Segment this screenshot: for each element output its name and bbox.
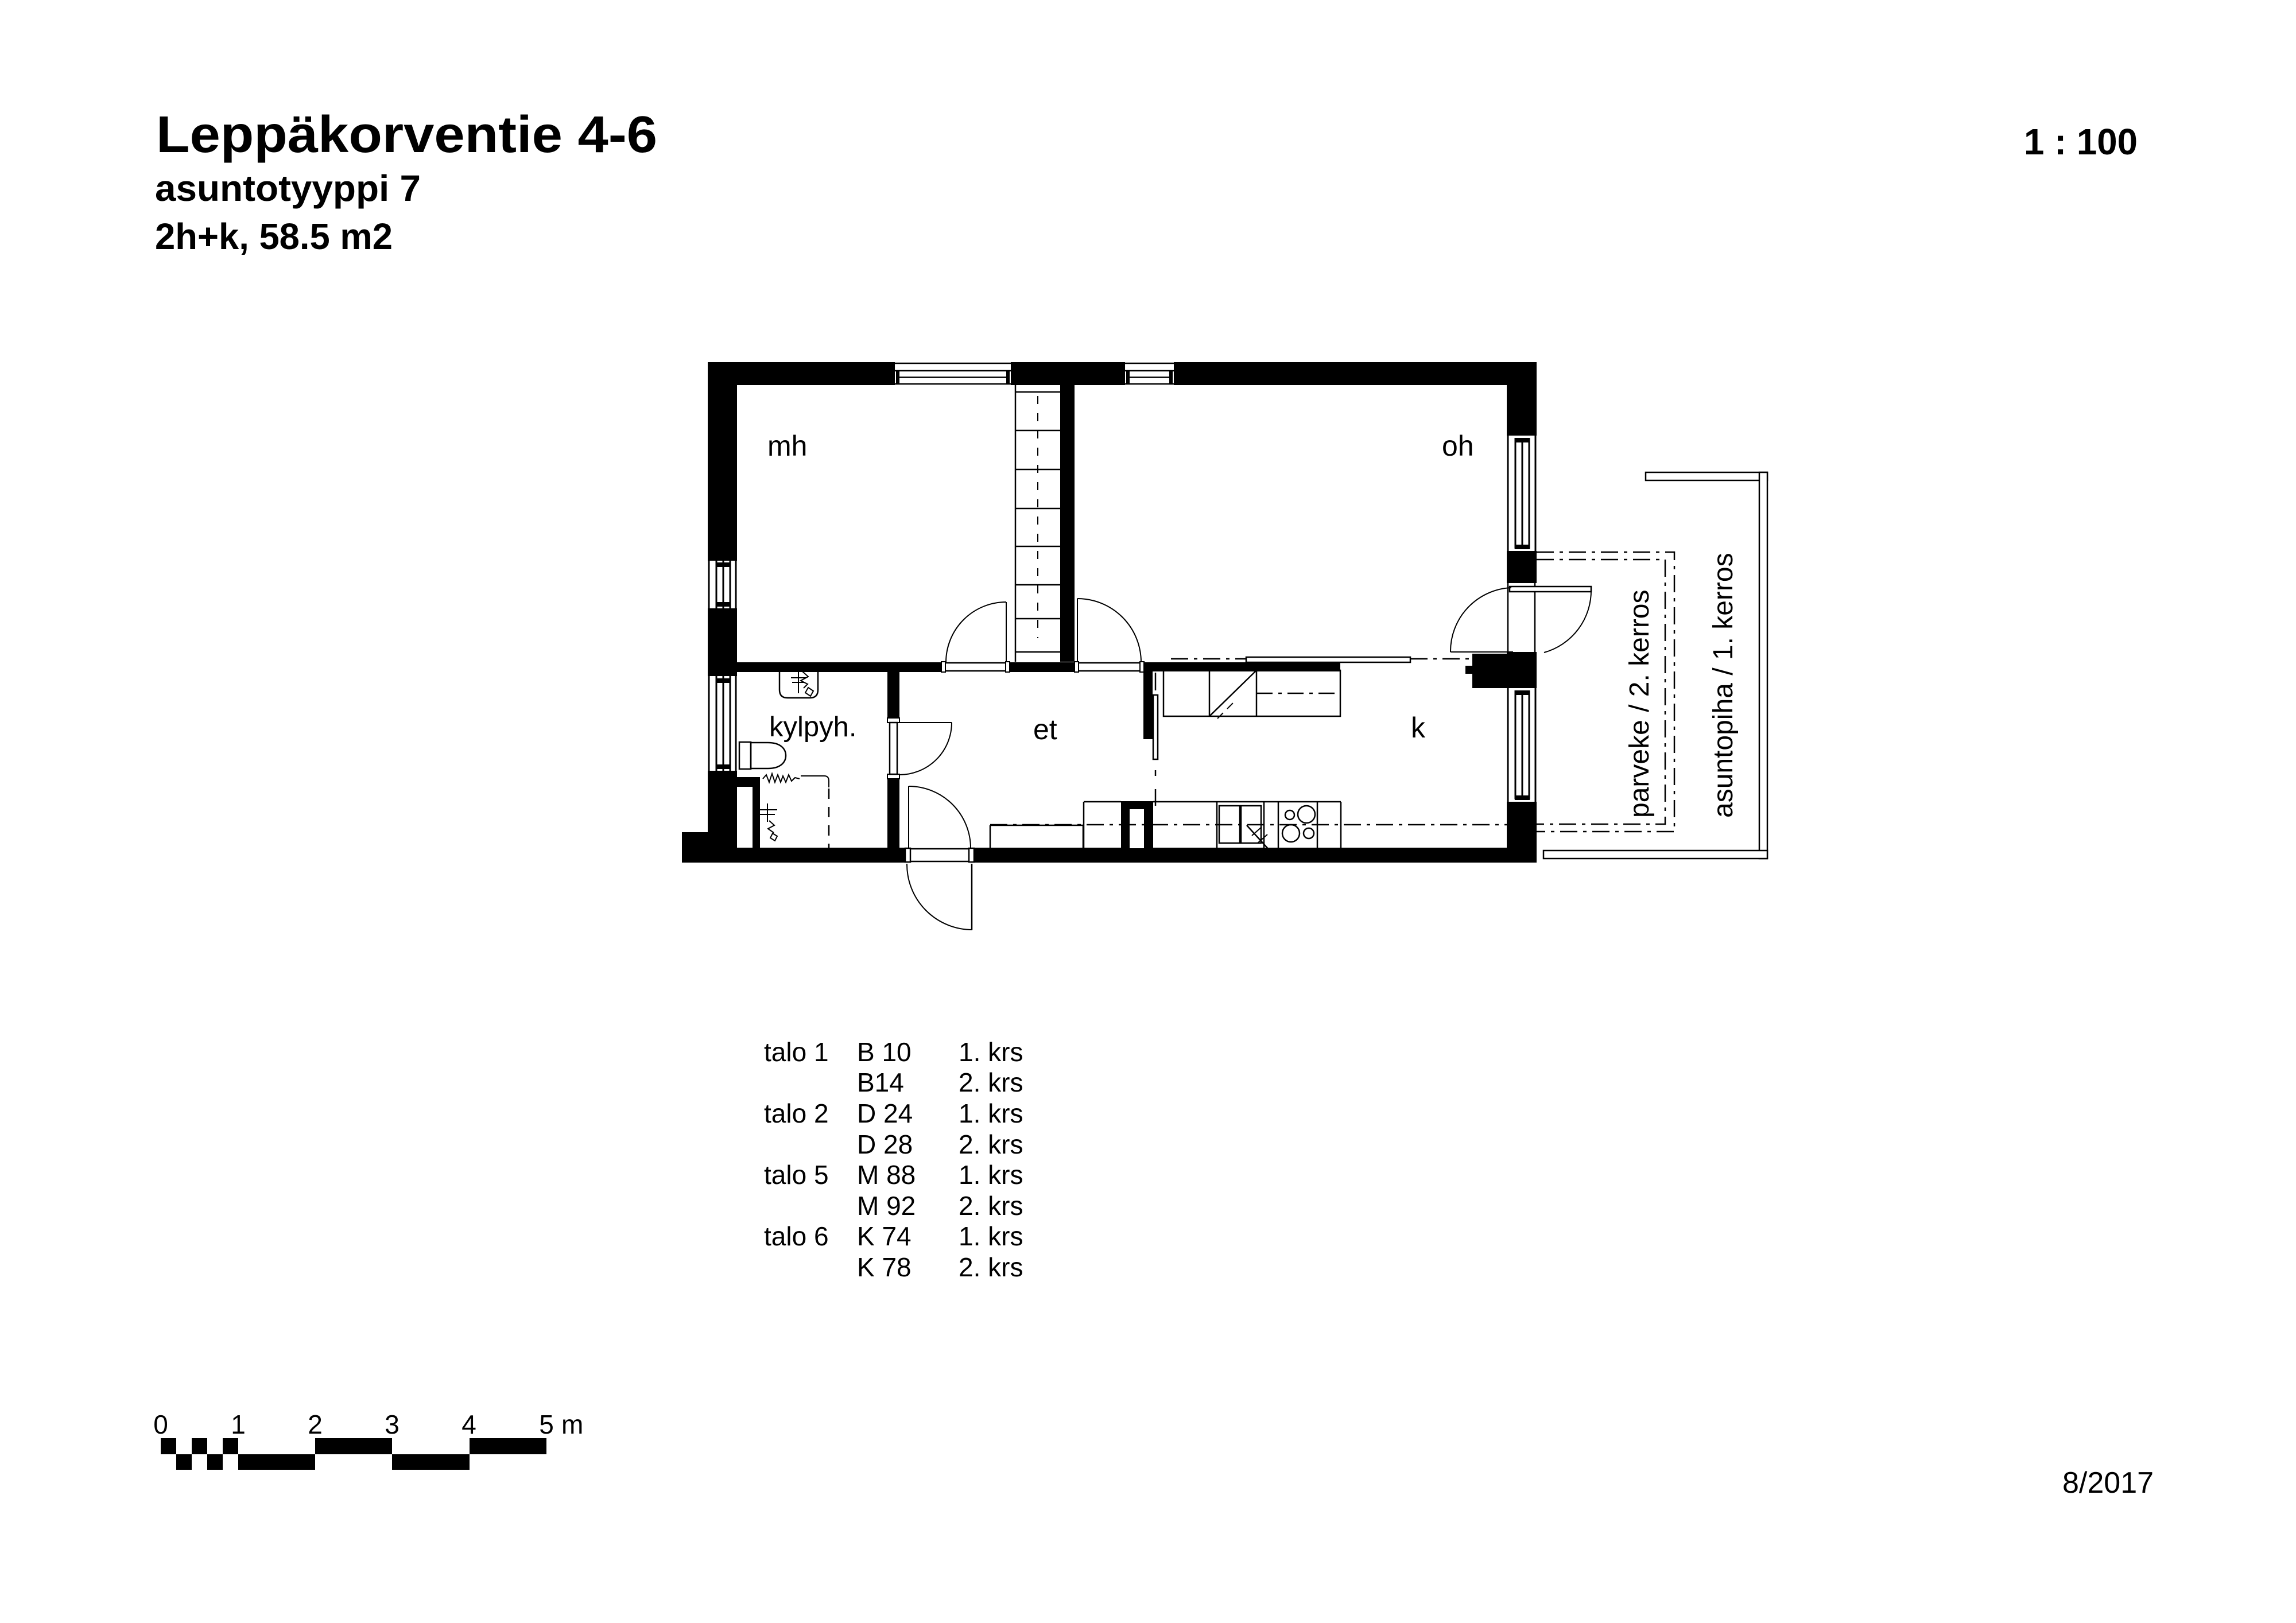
svg-text:1. krs: 1. krs [959,1098,1023,1128]
svg-text:1. krs: 1. krs [959,1160,1023,1190]
svg-text:B 10: B 10 [857,1037,912,1067]
svg-text:Leppäkorventie 4-6: Leppäkorventie 4-6 [156,106,657,164]
svg-text:et: et [1033,713,1057,746]
svg-text:k: k [1411,712,1426,744]
svg-text:asuntopiha / 1. kerros: asuntopiha / 1. kerros [1708,553,1739,818]
svg-text:5: 5 [539,1410,554,1439]
svg-text:0: 0 [153,1410,168,1439]
svg-text:1 : 100: 1 : 100 [2024,121,2138,162]
svg-text:2h+k, 58.5 m2: 2h+k, 58.5 m2 [155,216,393,257]
svg-text:K 78: K 78 [857,1252,912,1282]
svg-text:8/2017: 8/2017 [2062,1466,2154,1500]
svg-text:D 28: D 28 [857,1129,913,1159]
svg-text:2. krs: 2. krs [959,1191,1023,1221]
svg-text:kylpyh.: kylpyh. [769,712,857,743]
svg-text:M 88: M 88 [857,1160,916,1190]
svg-text:m: m [561,1410,583,1439]
svg-text:2. krs: 2. krs [959,1252,1023,1282]
svg-text:B14: B14 [857,1067,904,1097]
svg-text:asuntotyyppi 7: asuntotyyppi 7 [155,168,421,209]
svg-text:M 92: M 92 [857,1191,916,1221]
svg-text:talo 1: talo 1 [764,1037,829,1067]
svg-text:3: 3 [385,1410,400,1439]
svg-text:oh: oh [1442,430,1474,462]
svg-text:1. krs: 1. krs [959,1221,1023,1251]
svg-text:parveke / 2. kerros: parveke / 2. kerros [1624,590,1655,818]
svg-text:2. krs: 2. krs [959,1129,1023,1159]
svg-text:mh: mh [767,430,807,462]
svg-text:1. krs: 1. krs [959,1037,1023,1067]
svg-text:K 74: K 74 [857,1221,912,1251]
svg-text:talo 2: talo 2 [764,1098,829,1128]
svg-text:D 24: D 24 [857,1098,913,1128]
svg-text:4: 4 [461,1410,476,1439]
svg-text:1: 1 [231,1410,246,1439]
svg-text:talo 5: talo 5 [764,1160,829,1190]
svg-text:2: 2 [308,1410,323,1439]
svg-text:talo 6: talo 6 [764,1221,829,1251]
svg-text:2. krs: 2. krs [959,1067,1023,1097]
